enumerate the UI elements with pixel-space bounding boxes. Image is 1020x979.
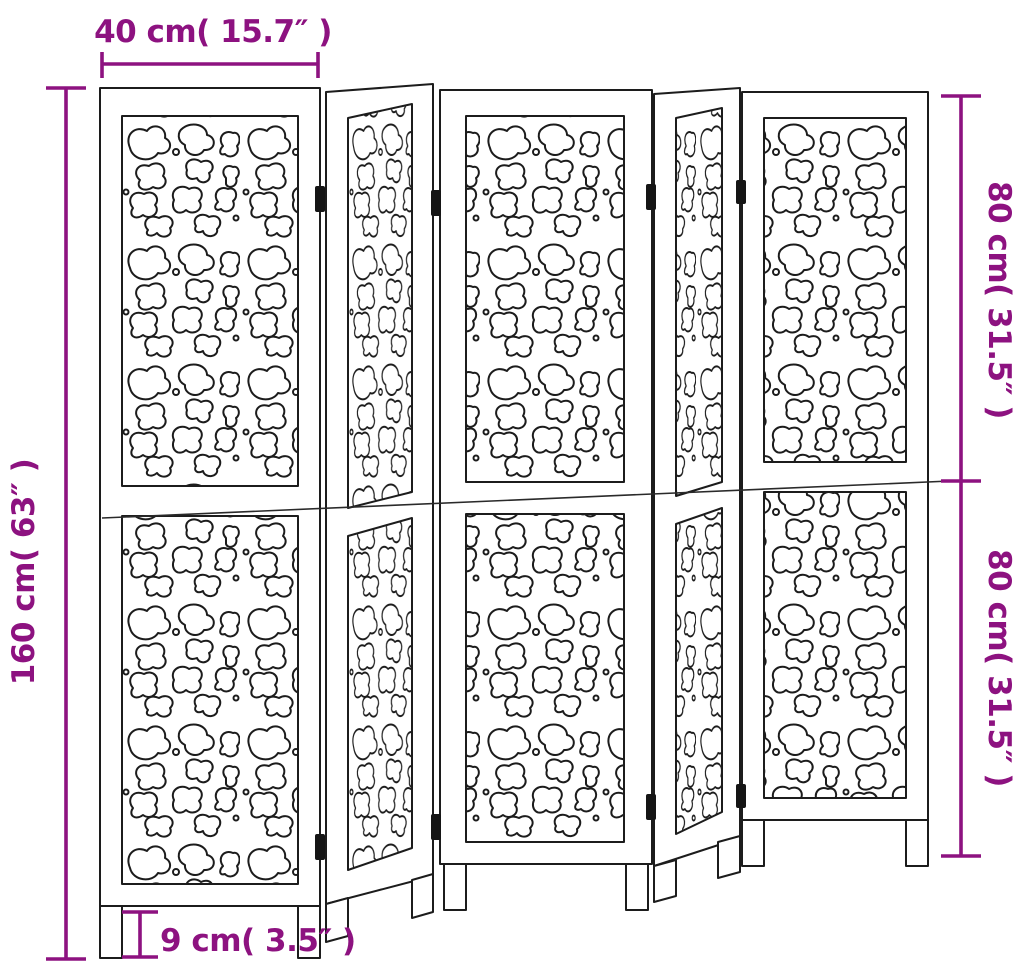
panel-2 (326, 84, 433, 942)
panel-3 (440, 90, 652, 910)
panel-3-lower-cutout-pattern (466, 514, 624, 842)
hinge-icon (646, 184, 656, 210)
panel-4-left-leg (654, 860, 676, 902)
panel-2-upper-cutout-pattern (348, 104, 412, 508)
dimension-top-width: 40 cm( 15.7″ ) (94, 14, 332, 78)
panel-2-right-leg (412, 874, 433, 918)
panel-5-upper-cutout-pattern (764, 118, 906, 462)
dimension-label-top-width: 40 cm( 15.7″ ) (94, 14, 332, 50)
dimension-label-right-lower: 80 cm( 31.5″ ) (981, 549, 1017, 787)
panel-5-right-leg (906, 818, 928, 866)
panel-3-upper-cutout-pattern (466, 116, 624, 482)
hinge-icon (315, 834, 325, 860)
hinge-icon (431, 190, 441, 216)
panel-1-upper-cutout-pattern (122, 116, 298, 486)
panel-2-lower-cutout-pattern (348, 518, 412, 870)
hinge-icon (431, 814, 441, 840)
panel-4-right-leg (718, 836, 740, 878)
product-dimension-diagram: 40 cm( 15.7″ ) 160 cm( 63″ ) 80 cm( 31.5… (0, 0, 1020, 979)
divider-diagram-canvas: 40 cm( 15.7″ ) 160 cm( 63″ ) 80 cm( 31.5… (0, 0, 1020, 979)
panel-5-lower-cutout-pattern (764, 492, 906, 798)
hinge-icon (736, 784, 746, 808)
panel-5 (742, 92, 928, 866)
dimension-label-right-upper: 80 cm( 31.5″ ) (981, 181, 1017, 419)
panel-5-left-leg (742, 818, 764, 866)
hinge-icon (646, 794, 656, 820)
dimension-right-heights: 80 cm( 31.5″ ) 80 cm( 31.5″ ) (941, 96, 1017, 856)
panel-1-left-leg (100, 904, 122, 958)
panel-4-upper-cutout-pattern (676, 108, 722, 496)
hinge-icon (315, 186, 325, 212)
panel-3-left-leg (444, 862, 466, 910)
dimension-label-left-height: 160 cm( 63″ ) (6, 459, 42, 686)
panel-4 (654, 88, 740, 902)
dimension-left-total-height: 160 cm( 63″ ) (6, 88, 86, 959)
panel-3-right-leg (626, 862, 648, 910)
dimension-label-leg-height: 9 cm( 3.5″ ) (160, 923, 356, 959)
panel-1-lower-cutout-pattern (122, 516, 298, 884)
panel-1 (100, 88, 320, 958)
panel-4-lower-cutout-pattern (676, 508, 722, 834)
hinge-icon (736, 180, 746, 204)
